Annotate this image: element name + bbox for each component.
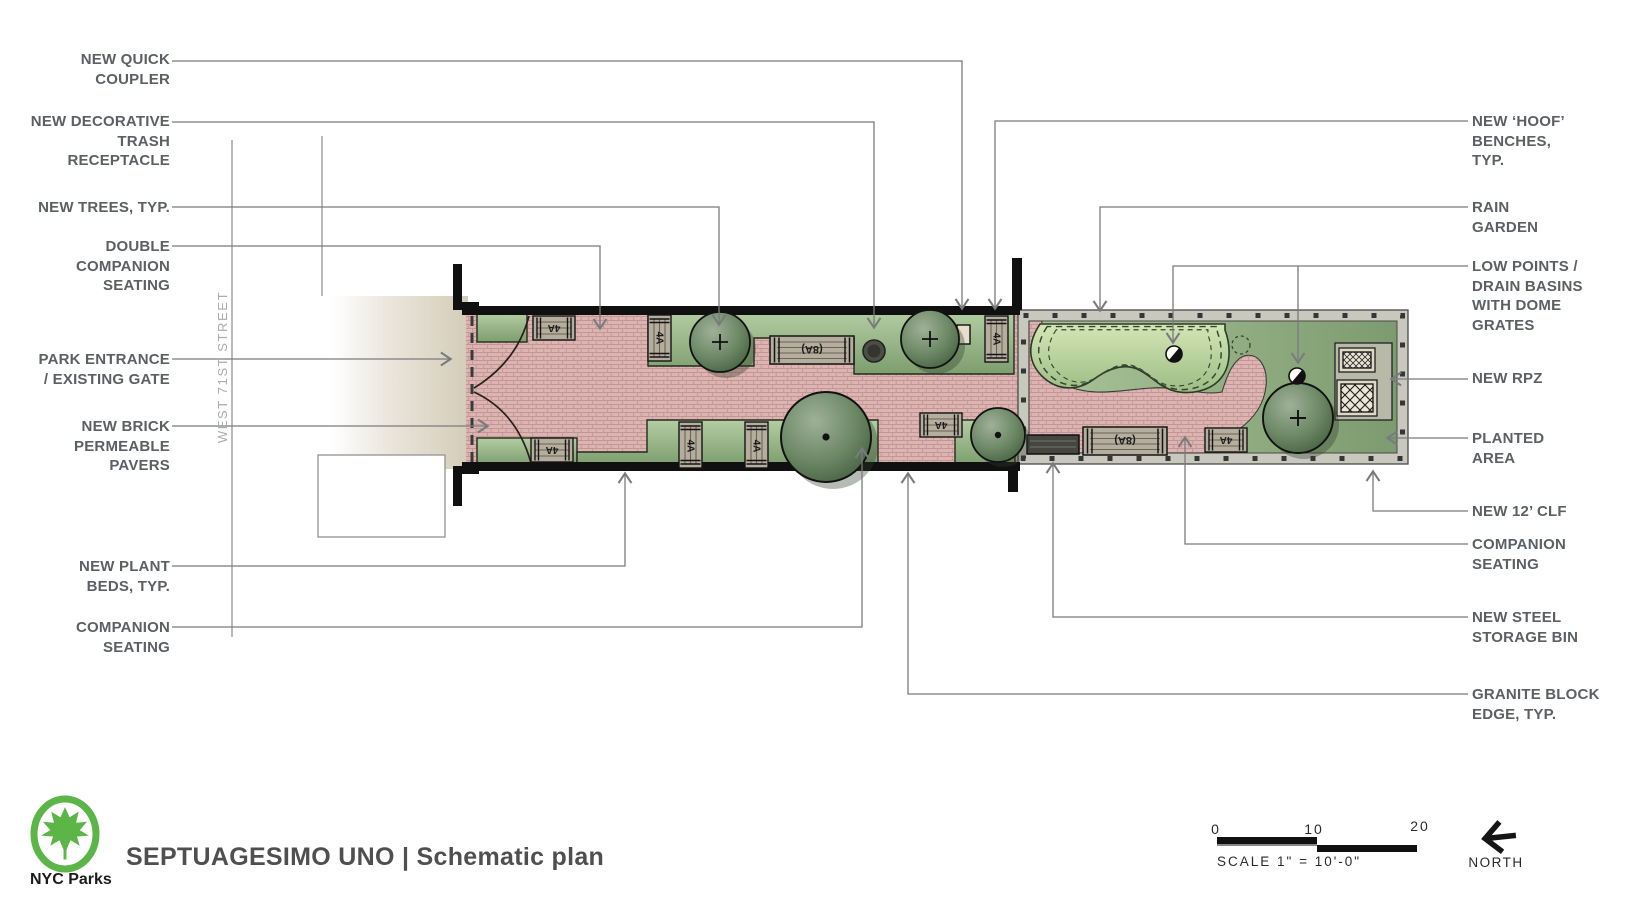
- callout-new-12-clf: NEW 12’ CLF: [1472, 502, 1626, 522]
- bench-label: 4A: [1220, 434, 1233, 445]
- leader-hoof-benches: [995, 121, 1468, 308]
- callout-double-companion: DOUBLE COMPANION SEATING: [0, 237, 170, 296]
- street-name-label: WEST 71ST STREET: [215, 285, 233, 449]
- leader-granite-block-edge: [908, 474, 1468, 694]
- north-label: NORTH: [1468, 855, 1523, 870]
- leader-rain-garden: [1100, 207, 1468, 310]
- scale-tick-0: 0: [1211, 821, 1221, 837]
- callout-plant-beds: NEW PLANT BEDS, TYP.: [0, 557, 170, 596]
- callout-steel-storage-bin: NEW STEEL STORAGE BIN: [1472, 608, 1626, 647]
- callout-low-points: LOW POINTS / DRAIN BASINS WITH DOME GRAT…: [1472, 257, 1626, 335]
- callout-hoof-benches: NEW ‘HOOF’ BENCHES, TYP.: [1472, 112, 1626, 171]
- bench-label: 4A: [991, 333, 1002, 346]
- drawing-title: Schematic plan: [417, 843, 605, 871]
- bench-label: 4A: [546, 444, 559, 455]
- rpz-unit: [1341, 384, 1373, 412]
- bench-label: 4A: [685, 440, 696, 453]
- callout-companion-right: COMPANION SEATING: [1472, 535, 1626, 574]
- callout-granite-block-edge: GRANITE BLOCK EDGE, TYP.: [1472, 685, 1626, 724]
- rpz-unit: [1343, 352, 1371, 368]
- sidewalk: [330, 296, 468, 469]
- callout-park-entrance: PARK ENTRANCE / EXISTING GATE: [0, 350, 170, 389]
- nyc-parks-logo: [34, 799, 96, 869]
- bench-label: 4A: [548, 322, 561, 333]
- north-arrow: [1484, 820, 1518, 853]
- plant-bed: [477, 313, 527, 342]
- north-arrow-icon: [1484, 820, 1518, 853]
- callout-planted-area: PLANTED AREA: [1472, 429, 1626, 468]
- agency-name: NYC Parks: [30, 871, 112, 889]
- schematic-plan-sheet: 4A 4A 4A 4A 4A 4A 4A (8A) (8A) 4A: [0, 0, 1626, 911]
- scale-caption: SCALE 1" = 10'-0": [1217, 854, 1361, 869]
- bench-label: 4A: [654, 332, 665, 345]
- leader-trash-receptacle: [172, 122, 874, 327]
- steel-storage-bin: [1027, 435, 1079, 454]
- bench-label: 4A: [751, 440, 762, 453]
- callout-new-trees: NEW TREES, TYP.: [0, 198, 170, 218]
- scale-tick-10: 10: [1304, 821, 1324, 837]
- sheet-title: SEPTUAGESIMO UNO | Schematic plan: [126, 843, 604, 872]
- scale-tick-20: 20: [1410, 818, 1430, 834]
- park-name: SEPTUAGESIMO UNO: [126, 843, 395, 871]
- leader-new-quick-coupler: [172, 61, 962, 308]
- street-context: [232, 136, 468, 637]
- callout-companion-left: COMPANION SEATING: [0, 618, 170, 657]
- plan-drawing: 4A 4A 4A 4A 4A 4A 4A (8A) (8A) 4A: [0, 0, 1626, 911]
- bench-label: (8A): [1114, 434, 1136, 446]
- curb-rectangle: [318, 455, 445, 537]
- callout-trash-receptacle: NEW DECORATIVE TRASH RECEPTACLE: [0, 112, 170, 171]
- scale-bar: 0 10 20 SCALE 1" = 10'-0": [1211, 818, 1430, 869]
- leader-companion-seating-left: [172, 449, 862, 627]
- bench-label: (8A): [801, 343, 823, 355]
- callout-new-quick-coupler: NEW QUICK COUPLER: [0, 50, 170, 89]
- leader-new-12-clf: [1373, 472, 1468, 511]
- leader-steel-storage-bin: [1053, 464, 1468, 617]
- callout-brick-pavers: NEW BRICK PERMEABLE PAVERS: [0, 417, 170, 476]
- callout-rain-garden: RAIN GARDEN: [1472, 198, 1626, 237]
- rpz-equipment-pad: [1335, 343, 1392, 420]
- callout-new-rpz: NEW RPZ: [1472, 369, 1626, 389]
- bench-label: 4A: [935, 419, 948, 430]
- title-divider: |: [395, 843, 417, 871]
